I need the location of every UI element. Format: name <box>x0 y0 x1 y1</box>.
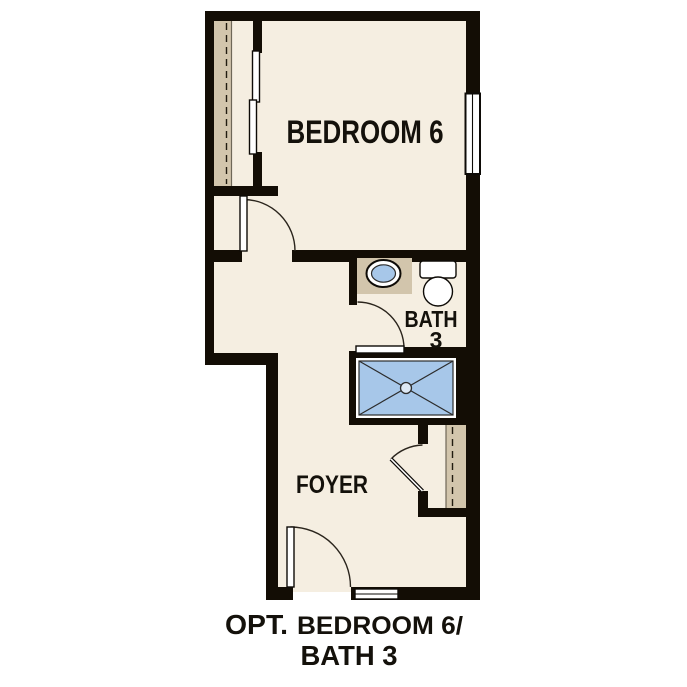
wall-top <box>205 11 480 21</box>
shower <box>356 358 456 418</box>
foyer-label: FOYER <box>296 471 368 499</box>
wall-closet-stub-top <box>253 21 262 53</box>
bedroom-label: BEDROOM 6 <box>287 114 444 150</box>
floor-plan-page: BEDROOM 6 BATH 3 FOYER OPT.BEDROOM 6/ BA… <box>0 0 687 687</box>
wall-bath-left <box>349 252 357 305</box>
toilet-tank <box>420 261 456 278</box>
caption-line-2: BATH 3 <box>301 640 398 671</box>
plan-caption: OPT.BEDROOM 6/ BATH 3 <box>225 609 463 671</box>
wall-bedroom-bottom-left <box>205 250 242 262</box>
sliding-door-panel <box>250 100 257 154</box>
sink-basin <box>372 265 396 282</box>
door-leaf <box>356 346 404 353</box>
caption-line-1: OPT.BEDROOM 6/ <box>225 609 463 640</box>
floor-plan: BEDROOM 6 BATH 3 FOYER OPT.BEDROOM 6/ BA… <box>0 0 687 687</box>
caption-title: BEDROOM 6/ <box>297 612 463 640</box>
door-leaf <box>287 527 294 587</box>
sliding-door-panel <box>253 51 260 102</box>
caption-opt: OPT. <box>225 609 288 640</box>
bedroom-closet <box>213 21 232 186</box>
wall-closet-stub-bottom <box>253 152 262 186</box>
door-leaf <box>240 196 247 251</box>
bedroom-window <box>466 94 481 175</box>
bath-number: 3 <box>430 327 443 353</box>
toilet-bowl <box>424 277 453 306</box>
wall-foyer-left <box>266 353 278 600</box>
closet-shelf-band <box>446 425 466 508</box>
closet-shelf-band <box>213 21 231 186</box>
wall-foyer-closet-bottom <box>418 508 466 517</box>
foyer-closet <box>446 425 466 508</box>
wall-bottom-left <box>266 587 293 600</box>
wall-foyer-closet-stub-top <box>418 425 428 444</box>
shower-drain <box>401 383 412 394</box>
wall-closet-bottom <box>205 186 278 196</box>
wall-step <box>205 353 278 365</box>
